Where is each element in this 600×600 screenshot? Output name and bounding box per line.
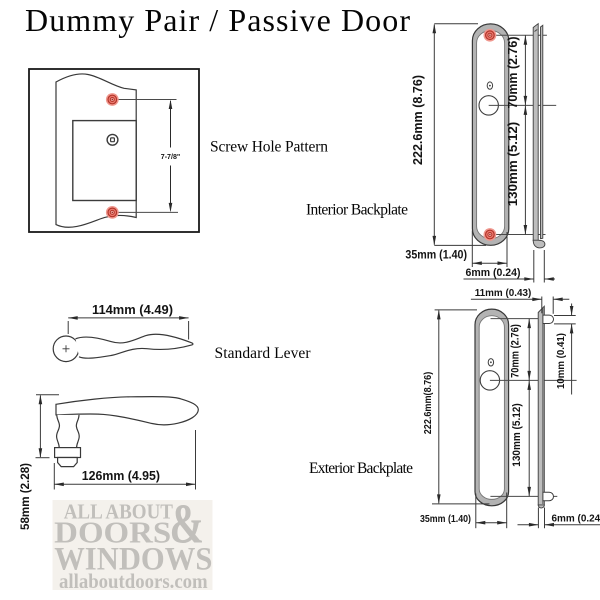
svg-text:10mm (0.41): 10mm (0.41)	[555, 333, 567, 389]
svg-text:Standard Lever: Standard Lever	[215, 345, 312, 362]
svg-text:allaboutdoors.com: allaboutdoors.com	[59, 569, 208, 593]
svg-text:35mm (1.40): 35mm (1.40)	[405, 250, 467, 262]
svg-text:Dummy Pair / Passive Door: Dummy Pair / Passive Door	[25, 2, 410, 38]
svg-text:7-7/8": 7-7/8"	[161, 152, 181, 161]
svg-text:70mm (2.76): 70mm (2.76)	[510, 324, 522, 378]
svg-text:222.6mm (8.76): 222.6mm (8.76)	[411, 75, 425, 165]
svg-text:35mm (1.40): 35mm (1.40)	[420, 513, 471, 525]
svg-text:222.6mm(8.76): 222.6mm(8.76)	[422, 372, 434, 435]
svg-text:Screw Hole Pattern: Screw Hole Pattern	[210, 139, 328, 156]
svg-text:70mm (2.76): 70mm (2.76)	[506, 37, 520, 109]
svg-text:114mm (4.49): 114mm (4.49)	[92, 302, 173, 317]
svg-text:11mm (0.43): 11mm (0.43)	[475, 287, 532, 299]
svg-text:6mm (0.24): 6mm (0.24)	[552, 513, 600, 525]
svg-text:Exterior Backplate: Exterior Backplate	[309, 460, 413, 477]
svg-text:126mm (4.95): 126mm (4.95)	[82, 468, 160, 483]
svg-text:130mm (5.12): 130mm (5.12)	[506, 122, 520, 207]
svg-text:58mm (2.28): 58mm (2.28)	[20, 463, 32, 530]
svg-text:Interior Backplate: Interior Backplate	[306, 202, 408, 219]
svg-text:6mm (0.24): 6mm (0.24)	[466, 267, 521, 279]
svg-text:130mm (5.12): 130mm (5.12)	[511, 403, 523, 467]
